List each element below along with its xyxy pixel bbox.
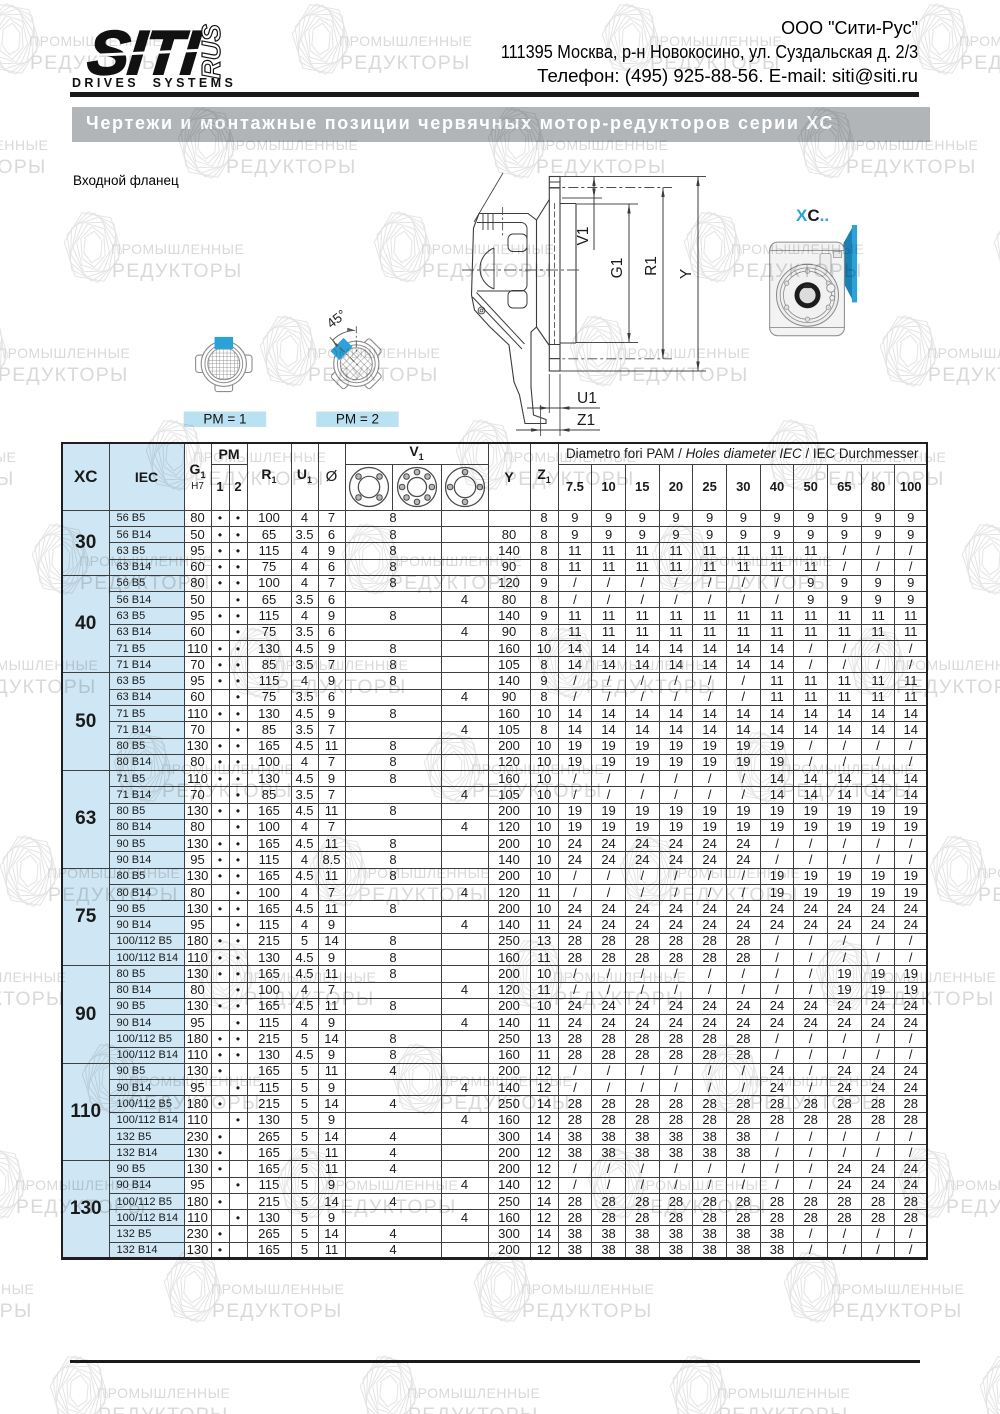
svg-text:R1: R1: [643, 256, 660, 276]
svg-text:XC..: XC..: [796, 206, 829, 225]
svg-text:PM = 2: PM = 2: [336, 412, 379, 427]
svg-text:V1: V1: [575, 227, 592, 246]
svg-text:45°: 45°: [324, 307, 349, 331]
svg-text:G1: G1: [609, 258, 626, 279]
svg-text:Z1: Z1: [577, 412, 595, 429]
svg-text:PM = 1: PM = 1: [203, 412, 246, 427]
svg-text:Y: Y: [678, 269, 695, 279]
svg-text:U1: U1: [577, 390, 597, 407]
